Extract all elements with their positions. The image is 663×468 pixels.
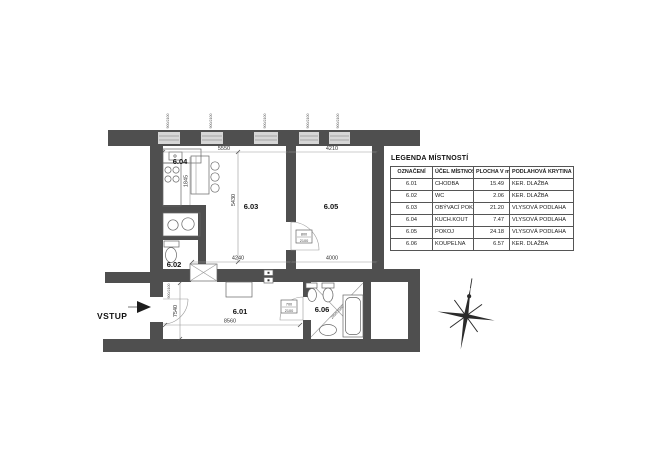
bath-toilet-tank [322,283,334,288]
entrance-label: VSTUP [97,311,127,321]
window-size-label: 900/2100 [336,114,340,129]
room-name: CHODBA [433,179,474,191]
wall-left-mid [150,283,163,297]
kitchen-fixtures [163,149,219,206]
room-label-603: 6.03 [244,202,259,211]
entrance-door-label: 900/2100 [167,284,171,299]
bath-bidet-tank [306,283,317,288]
room-id: 6.04 [391,215,433,227]
room-floor: KER. DLAŽBA [510,191,574,203]
bath-toilet [323,288,333,302]
dim-top-left: 5550 [218,146,230,152]
wall-middle-c [303,269,420,282]
door-height-label: 2100 [285,309,293,313]
legend-header-row: OZNAČENÍ ÚČEL MÍSTNOSTI PLOCHA V m2 PODL… [391,167,574,179]
room-id: 6.02 [391,191,433,203]
wall-middle-b [217,269,303,282]
room-name: WC [433,191,474,203]
island-stools [211,162,219,192]
wall-middle-a [163,269,191,282]
wall-bath-left-lower [303,320,311,339]
french-door [190,264,217,281]
room-area: 6.57 [474,239,510,251]
basin-left [168,220,178,230]
utility-fixtures [163,213,200,236]
legend: LEGENDA MÍSTNOSTÍ OZNAČENÍ ÚČEL MÍSTNOST… [390,155,575,251]
col-header-oznaceni: OZNAČENÍ [391,167,433,179]
dim-corridor-height: 7540 [173,305,179,317]
legend-row-606: 6.06 KOUPELNA 6.57 KER. DLAŽBA [391,239,574,251]
door-height-label: 2100 [300,239,308,243]
room-id: 6.01 [391,179,433,191]
wall-right [372,146,384,272]
dim-mid-left: 4240 [232,256,244,262]
legend-row-604: 6.04 KUCH.KOUT 7.47 VLYSOVÁ PODLAHA [391,215,574,227]
bath-sink [320,325,337,336]
room-id: 6.06 [391,239,433,251]
entrance-arrow [137,301,151,313]
window-3 [254,132,278,144]
floorplan-page: 900/2100 900/2100 900/2100 900/2100 900/… [0,0,663,468]
dim-top-right: 4210 [326,146,338,152]
room-label-604: 6.04 [173,157,188,166]
room-floor: VLYSOVÁ PODLAHA [510,227,574,239]
compass-rose [432,274,501,354]
bath-bidet [308,289,317,302]
room-area: 24.18 [474,227,510,239]
room-area: 15.49 [474,179,510,191]
room-area: 21.20 [474,203,510,215]
room-name: KUCH.KOUT [433,215,474,227]
room-floor: KER. DLAŽBA [510,239,574,251]
door-bathroom: 700 2100 [280,297,303,320]
wall-utility-right [198,213,206,269]
bath-diagonal-label: 2850/2580 [330,305,345,320]
window-size-label: 900/2100 [209,114,213,129]
basin-right [182,218,194,230]
room-floor: KER. DLAŽBA [510,179,574,191]
room-label-601: 6.01 [233,307,248,316]
kitchen-island [191,156,209,194]
room-label-602: 6.02 [167,260,182,269]
wall-left-stub [105,272,163,283]
corridor-cabinet [226,282,252,297]
wall-room-separator-lower [286,250,296,269]
dim-corridor-length: 8560 [224,319,236,325]
kitchen-counter-left [163,163,181,206]
window-size-label: 900/2100 [263,114,267,129]
wall-wc-divider [163,236,198,240]
room-id: 6.03 [391,203,433,215]
room-label-606: 6.06 [315,305,330,314]
door-width-label: 800 [301,233,307,237]
col-header-plocha: PLOCHA V m2 [474,167,510,179]
wall-right-edge [408,282,420,339]
door-living-bedroom: 800 2100 [291,222,319,250]
wall-bottom [103,339,420,352]
walls [103,130,420,352]
stove-burners [165,167,179,182]
room-label-605: 6.05 [324,202,339,211]
entrance: VSTUP [97,301,151,321]
dim-mid-right: 4000 [326,256,338,262]
legend-row-601: 6.01 CHODBA 15.49 KER. DLAŽBA [391,179,574,191]
legend-row-605: 6.05 POKOJ 24.18 VLYSOVÁ PODLAHA [391,227,574,239]
window-5 [329,132,350,144]
window-size-label: 900/2100 [306,114,310,129]
room-name: OBÝVACÍ POKOJ [433,203,474,215]
wall-left-lower [150,322,163,339]
room-name: POKOJ [433,227,474,239]
wall-room-separator-upper [286,146,296,222]
dim-kitchen-depth: 1845 [184,175,190,187]
legend-row-603: 6.03 OBÝVACÍ POKOJ 21.20 VLYSOVÁ PODLAHA [391,203,574,215]
legend-table: OZNAČENÍ ÚČEL MÍSTNOSTI PLOCHA V m2 PODL… [390,166,574,251]
room-floor: VLYSOVÁ PODLAHA [510,203,574,215]
room-id: 6.05 [391,227,433,239]
window-2 [201,132,223,144]
legend-title: LEGENDA MÍSTNOSTÍ [391,155,575,162]
window-1 [158,132,180,144]
room-floor: VLYSOVÁ PODLAHA [510,215,574,227]
door-width-label: 700 [286,303,292,307]
room-area: 2.06 [474,191,510,203]
wall-bath-right [363,282,371,339]
bathtub [343,295,363,337]
window-4 [299,132,319,144]
room-area: 7.47 [474,215,510,227]
wc-cistern [164,241,179,247]
window-size-label: 900/2100 [166,114,170,129]
col-header-ucel: ÚČEL MÍSTNOSTI [433,167,474,179]
col-header-krytina: PODLAHOVÁ KRYTINA [510,167,574,179]
legend-row-602: 6.02 WC 2.06 KER. DLAŽBA [391,191,574,203]
room-name: KOUPELNA [433,239,474,251]
dim-living-height: 5430 [231,194,237,206]
